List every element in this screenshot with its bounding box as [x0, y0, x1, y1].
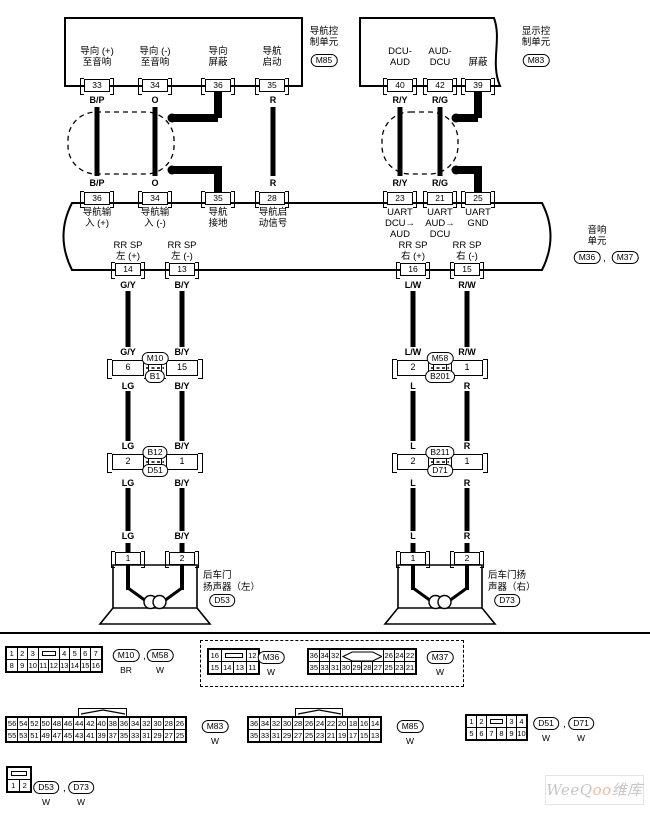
speaker-pin-2: 2: [169, 552, 195, 565]
connector-code-m58: M58: [427, 352, 454, 365]
disp-pin-label: 屏蔽: [468, 57, 487, 68]
audio-unit-name: 音响 单元: [587, 225, 606, 247]
nav-pin-label: 导向 屏蔽: [208, 46, 227, 68]
wire-color: LG: [121, 381, 136, 391]
wire-color: B/Y: [173, 280, 190, 290]
wire-color: R: [463, 381, 472, 391]
watermark-text: 维库: [612, 781, 643, 799]
pin-36b: 36: [84, 192, 110, 205]
wiring-diagram-page: 导向 (+) 至音响 导向 (-) 至音响 导向 屏蔽 导航 启动 导航控 制单…: [0, 0, 650, 814]
connector-color: W: [577, 733, 585, 743]
pin-cell: 25: [174, 729, 186, 742]
watermark-text: WeeQ: [546, 781, 592, 799]
pin-35b: 35: [205, 192, 231, 205]
wire-color: B/Y: [173, 478, 190, 488]
wire-color: B/Y: [173, 441, 190, 451]
pin-cell: 11: [246, 661, 260, 674]
wire-color: R/Y: [391, 95, 408, 105]
audio-pin-label: UART GND: [465, 207, 491, 229]
connector-code-m58: M58: [147, 649, 174, 662]
audio-pin-label: UART AUD→ DCU: [425, 207, 455, 241]
pin-33: 33: [84, 79, 110, 92]
connector-face-d51-d71: 12345678910: [465, 714, 528, 741]
rrsp-label: RR SP 左 (+): [113, 240, 142, 262]
disp-pin-label: AUD- DCU: [428, 46, 451, 68]
pin-28: 28: [259, 192, 285, 205]
connector-code-d71: D71: [427, 464, 453, 477]
audio-unit-code-m36: M36: [574, 251, 601, 264]
wire-color: R/W: [457, 280, 477, 290]
audio-pin-label: 导航输 入 (+): [83, 207, 112, 229]
pin-cell: 16: [90, 659, 102, 672]
connector-face-m10-m58: 12345678910111213141516: [5, 646, 103, 673]
rrsp-label: RR SP 右 (+): [398, 240, 427, 262]
audio-unit-code-m37: M37: [612, 251, 639, 264]
wire-color: L/W: [404, 280, 423, 290]
audio-pin-label: 导航启 动信号: [259, 207, 288, 229]
pin-cell: 15: [208, 661, 222, 674]
pin-14: 14: [115, 263, 141, 276]
connector-color: W: [77, 797, 85, 807]
pin-cell: 10: [516, 727, 527, 740]
wire-color: B/Y: [173, 381, 190, 391]
pin-36: 36: [205, 79, 231, 92]
wire-color: L/W: [404, 347, 423, 357]
comma: ,: [63, 783, 66, 794]
connector-code-m83: M83: [202, 720, 229, 733]
connector-color: W: [542, 733, 550, 743]
connector-face-m37: 36343226242235333130292827252321: [307, 648, 417, 675]
wire-color: L: [409, 381, 417, 391]
wire-color: G/Y: [119, 280, 137, 290]
pin-42: 42: [427, 79, 453, 92]
speaker-pin-2: 2: [454, 552, 480, 565]
connector-code-m10: M10: [142, 352, 169, 365]
pin-15: 15: [454, 263, 480, 276]
shield-wires: [172, 92, 482, 192]
pin-16: 16: [400, 263, 426, 276]
wire-color: R/Y: [391, 178, 408, 188]
left-speaker-body: [100, 565, 210, 624]
pin-34b: 34: [142, 192, 168, 205]
connector-color: W: [267, 667, 275, 677]
left-speaker-code: D53: [209, 594, 235, 607]
connector-tab: [295, 708, 343, 716]
connector-code-d53: D53: [33, 781, 59, 794]
rrsp-label: RR SP 左 (-): [167, 240, 196, 262]
unit-boxes: [64, 18, 551, 270]
wire-color: L: [409, 531, 417, 541]
connector-terminal: 2: [397, 454, 429, 470]
right-speaker-code: D73: [494, 594, 520, 607]
left-speaker-label: 后车门 扬声器（左）: [203, 570, 260, 594]
wire-color: B/Y: [173, 347, 190, 357]
pin-39: 39: [465, 79, 491, 92]
connector-code-b1: B1: [145, 370, 165, 383]
right-speaker-label: 后车门扬 声器（右）: [488, 570, 536, 594]
wire-color: B/Y: [173, 531, 190, 541]
comma: ,: [143, 651, 146, 662]
connector-code-b12: B12: [142, 446, 167, 459]
wire-color: R: [269, 95, 278, 105]
diagram-linework: [0, 0, 650, 814]
connector-code-m37: M37: [427, 651, 454, 664]
connector-color: W: [42, 797, 50, 807]
wire-color: G/Y: [119, 347, 137, 357]
wire-color: R: [269, 178, 278, 188]
pin-23: 23: [387, 192, 413, 205]
right-speaker-body: [385, 565, 495, 624]
speaker-pin-1: 1: [400, 552, 426, 565]
connector-code-m36: M36: [258, 651, 285, 664]
wire-color: LG: [121, 478, 136, 488]
pin-13: 13: [169, 263, 195, 276]
connector-terminal: 1: [166, 454, 198, 470]
pin-25: 25: [465, 192, 491, 205]
display-unit-name: 显示控 制单元: [522, 26, 551, 48]
wire-color: LG: [121, 441, 136, 451]
audio-pin-label: 导航 接地: [208, 207, 227, 229]
connector-tab: [78, 708, 127, 716]
disp-pin-label: DCU- AUD: [388, 46, 412, 68]
wire-color: R/G: [431, 95, 449, 105]
pin-cell: 2: [19, 779, 32, 792]
connector-color: W: [406, 736, 414, 746]
connector-terminal: 15: [166, 360, 198, 376]
pin-40: 40: [387, 79, 413, 92]
wire-color: R: [463, 531, 472, 541]
pin-21: 21: [427, 192, 453, 205]
watermark-text: oo: [593, 781, 612, 799]
wire-color: L: [409, 441, 417, 451]
connector-code-d71: D71: [568, 717, 594, 730]
shield-junction-dots: [168, 114, 461, 175]
comma: ,: [563, 719, 566, 730]
speaker-coils: [126, 565, 469, 609]
wire-color: B/P: [88, 178, 105, 188]
wire-color: O: [150, 95, 159, 105]
connector-face-m85: 3634323028262422201816143533312927252321…: [247, 716, 382, 743]
speaker-symbols: [100, 565, 495, 624]
connector-terminal: 6: [112, 360, 144, 376]
section-divider: [0, 632, 650, 634]
connector-color: W: [211, 736, 219, 746]
connector-code-d51: D51: [142, 464, 168, 477]
connector-code-m85: M85: [397, 720, 424, 733]
comma: ,: [603, 253, 606, 264]
connector-code-m10: M10: [113, 649, 140, 662]
wire-color: B/P: [88, 95, 105, 105]
connector-terminal: 2: [112, 454, 144, 470]
pin-cell: 13: [233, 661, 247, 674]
wire-color: R: [463, 478, 472, 488]
audio-pin-label: UART DCU→ AUD: [385, 207, 415, 241]
wire-color: LG: [121, 531, 136, 541]
nav-unit-name: 导航控 制单元: [310, 26, 339, 48]
connector-terminal: 2: [397, 360, 429, 376]
pin-35: 35: [259, 79, 285, 92]
nav-unit-code: M85: [311, 54, 338, 67]
connector-terminal: 1: [451, 454, 483, 470]
wire-color: O: [150, 178, 159, 188]
wire-color: R/W: [457, 347, 477, 357]
rrsp-label: RR SP 右 (-): [452, 240, 481, 262]
connector-color: W: [156, 665, 164, 675]
nav-pin-label: 导向 (+) 至音响: [80, 46, 114, 68]
nav-pin-label: 导向 (-) 至音响: [139, 46, 170, 68]
pin-34: 34: [142, 79, 168, 92]
connector-code-b211: B211: [425, 446, 454, 459]
watermark: WeeQoo维库: [545, 775, 644, 805]
nav-pin-label: 导航 启动: [262, 46, 281, 68]
wire-color: L: [409, 478, 417, 488]
connector-joint-dashes: [146, 368, 449, 462]
pin-cell: 13: [369, 729, 381, 742]
connector-face-d53-d73: 12: [6, 766, 32, 793]
speaker-pin-1: 1: [115, 552, 141, 565]
connector-terminal: 1: [451, 360, 483, 376]
connector-color: W: [436, 667, 444, 677]
wire-color: R: [463, 441, 472, 451]
pin-cell: 14: [221, 661, 235, 674]
connector-color: BR: [120, 665, 132, 675]
display-unit-code: M83: [523, 54, 550, 67]
connector-code-d73: D73: [68, 781, 94, 794]
connector-code-b201: B201: [425, 370, 455, 383]
audio-pin-label: 导航输 入 (-): [141, 207, 170, 229]
connector-code-d51: D51: [533, 717, 559, 730]
connector-face-m36: 161215141311: [207, 648, 260, 675]
connector-face-m83: 5654525048464442403836343230282655535149…: [5, 716, 187, 743]
pin-cell: 21: [404, 661, 416, 674]
wire-color: R/G: [431, 178, 449, 188]
